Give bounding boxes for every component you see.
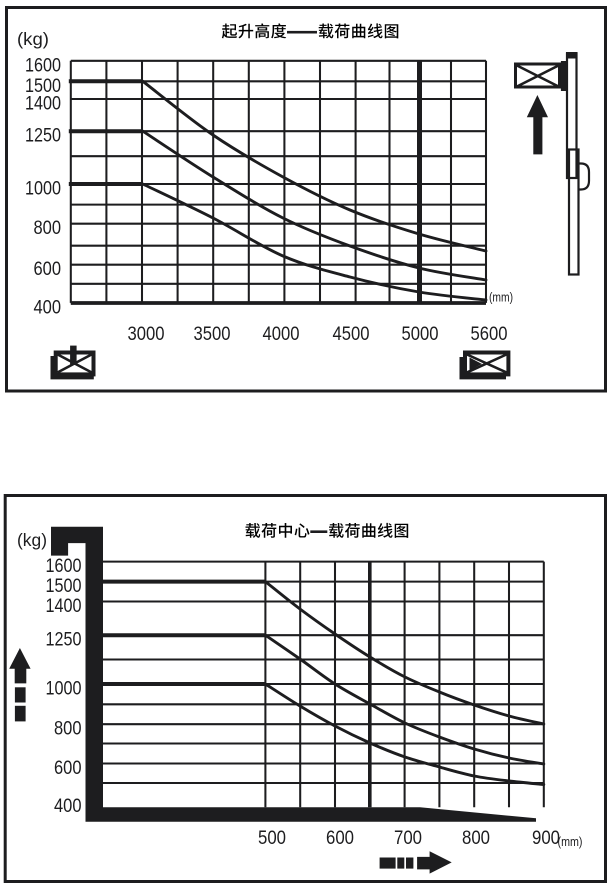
svg-text:1250: 1250 bbox=[46, 629, 82, 651]
svg-text:600: 600 bbox=[326, 827, 354, 849]
svg-text:600: 600 bbox=[34, 258, 62, 280]
svg-text:1500: 1500 bbox=[46, 575, 82, 597]
svg-text:(kg): (kg) bbox=[17, 29, 49, 49]
svg-text:1600: 1600 bbox=[46, 555, 82, 577]
svg-text:800: 800 bbox=[54, 718, 82, 740]
svg-text:4000: 4000 bbox=[263, 323, 300, 345]
svg-text:700: 700 bbox=[394, 827, 422, 849]
svg-text:1000: 1000 bbox=[46, 678, 82, 700]
svg-text:400: 400 bbox=[34, 296, 62, 318]
svg-text:900: 900 bbox=[532, 827, 560, 849]
svg-text:1400: 1400 bbox=[25, 93, 61, 115]
svg-text:5000: 5000 bbox=[402, 323, 439, 345]
svg-text:400: 400 bbox=[54, 795, 82, 817]
svg-text:1600: 1600 bbox=[25, 54, 61, 76]
svg-text:5600: 5600 bbox=[471, 323, 508, 345]
svg-text:(mm): (mm) bbox=[489, 290, 513, 305]
svg-text:1400: 1400 bbox=[46, 595, 82, 617]
svg-text:3500: 3500 bbox=[194, 323, 231, 345]
svg-text:800: 800 bbox=[462, 827, 490, 849]
svg-text:(mm): (mm) bbox=[558, 834, 583, 849]
svg-text:3000: 3000 bbox=[128, 323, 165, 345]
svg-text:1250: 1250 bbox=[25, 125, 61, 147]
svg-text:1000: 1000 bbox=[25, 178, 61, 200]
svg-text:(kg): (kg) bbox=[17, 530, 47, 550]
svg-text:4500: 4500 bbox=[333, 323, 370, 345]
svg-text:600: 600 bbox=[54, 757, 82, 779]
svg-text:800: 800 bbox=[34, 217, 62, 239]
svg-text:500: 500 bbox=[258, 827, 286, 849]
